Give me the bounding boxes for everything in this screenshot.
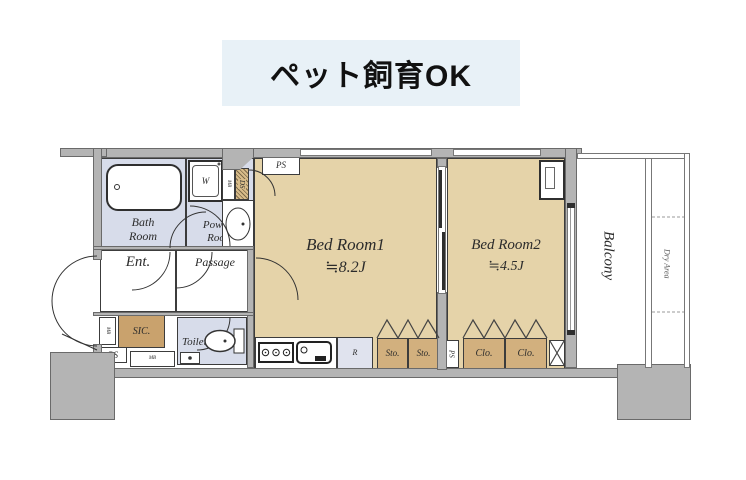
storage-2-label: Sto. <box>417 348 431 358</box>
sliding-panel-2 <box>442 232 445 290</box>
pets-ok-banner-text: ペット飼育OK <box>270 51 472 95</box>
window-top-bedroom2 <box>453 149 541 156</box>
bedroom2-corner-cabinet <box>539 160 565 200</box>
balcony-window <box>567 203 575 335</box>
entrance-label: Ent. <box>101 254 175 271</box>
wall-bottom <box>93 368 645 378</box>
room-entrance: Ent. <box>100 250 176 312</box>
bathtub-icon <box>106 164 182 211</box>
meter-box-left: MB <box>99 317 116 345</box>
bathroom-label: Bath Room <box>101 216 185 244</box>
closet-2: Clo. <box>505 338 547 369</box>
washer-label: W <box>202 176 210 186</box>
passage-label: Passage <box>177 256 253 270</box>
closet-1: Clo. <box>463 338 505 369</box>
bedroom1-name: Bed Room1 <box>255 235 436 255</box>
closet-2-label: Clo. <box>518 348 535 360</box>
room-bathroom: Bath Room <box>100 158 186 248</box>
pets-ok-banner: ペット飼育OK <box>222 40 520 106</box>
balcony-window-frame-top <box>567 203 575 208</box>
dry-area-label: Dry Area <box>663 249 672 279</box>
duct-space-box: DS <box>235 168 249 200</box>
balcony-rail-right <box>684 153 690 368</box>
balcony-area: Balcony <box>598 198 618 314</box>
column-bottom-left <box>50 352 115 420</box>
front-door-arc <box>52 256 97 346</box>
toilet-vent-box <box>180 352 200 364</box>
wall-h-wet <box>93 246 254 250</box>
wall-passage-bedroom1 <box>247 246 254 368</box>
washing-machine-icon: W <box>188 160 223 202</box>
storage-1-label: Sto. <box>386 348 400 358</box>
floorplan-page: ペット飼育OK Bed Room1 ≒8.2J Bed Room2 ≒4.5J … <box>0 0 746 480</box>
fridge-label: R <box>353 348 358 357</box>
balcony-label: Balcony <box>600 231 617 280</box>
meter-box-corner-label: MB <box>226 180 231 187</box>
wall-left-upper <box>93 148 102 260</box>
pipe-space-right-box <box>549 340 565 366</box>
room-passage: Passage <box>176 250 254 312</box>
duct-space-label: DS <box>238 179 246 190</box>
front-door-leaf <box>62 334 97 350</box>
balcony-window-frame-bottom <box>567 330 575 335</box>
meter-box-left-label: MB <box>105 327 110 334</box>
closet-1-label: Clo. <box>476 348 493 360</box>
room-sic: SIC. <box>118 315 165 348</box>
dry-area: Dry Area <box>660 228 674 300</box>
window-top-bedroom1 <box>300 149 432 156</box>
bedroom1-area: ≒8.2J <box>255 259 436 277</box>
storage-2: Sto. <box>408 338 439 369</box>
washbasin-counter <box>222 200 254 248</box>
toilet-label: Toilet <box>182 336 207 349</box>
sic-label: SIC. <box>133 326 151 338</box>
kitchen-counter <box>255 337 337 369</box>
storage-1: Sto. <box>377 338 408 369</box>
cabinet-fixture-icon <box>545 167 555 189</box>
wall-b1b2-bottom <box>437 292 447 370</box>
bedroom2-name: Bed Room2 <box>448 237 564 254</box>
fridge-space: R <box>337 337 373 369</box>
pipe-space-top: PS <box>262 156 300 175</box>
bedroom2-area: ≒4.5J <box>448 259 564 275</box>
meter-box-bottom-label: MB <box>149 356 156 362</box>
pipe-space-mid-label: PS <box>448 350 456 358</box>
balcony-rail-top <box>577 153 690 159</box>
meter-box-bottom: MB <box>130 351 175 367</box>
wall-h-toilet <box>93 312 254 316</box>
balcony-dryarea-divider <box>645 158 652 368</box>
column-bottom-right <box>617 364 691 420</box>
meter-box-corner: MB <box>222 168 235 200</box>
balcony-window-mullion <box>570 206 571 332</box>
pipe-space-top-label: PS <box>276 160 286 170</box>
sliding-panel-1 <box>439 170 442 228</box>
